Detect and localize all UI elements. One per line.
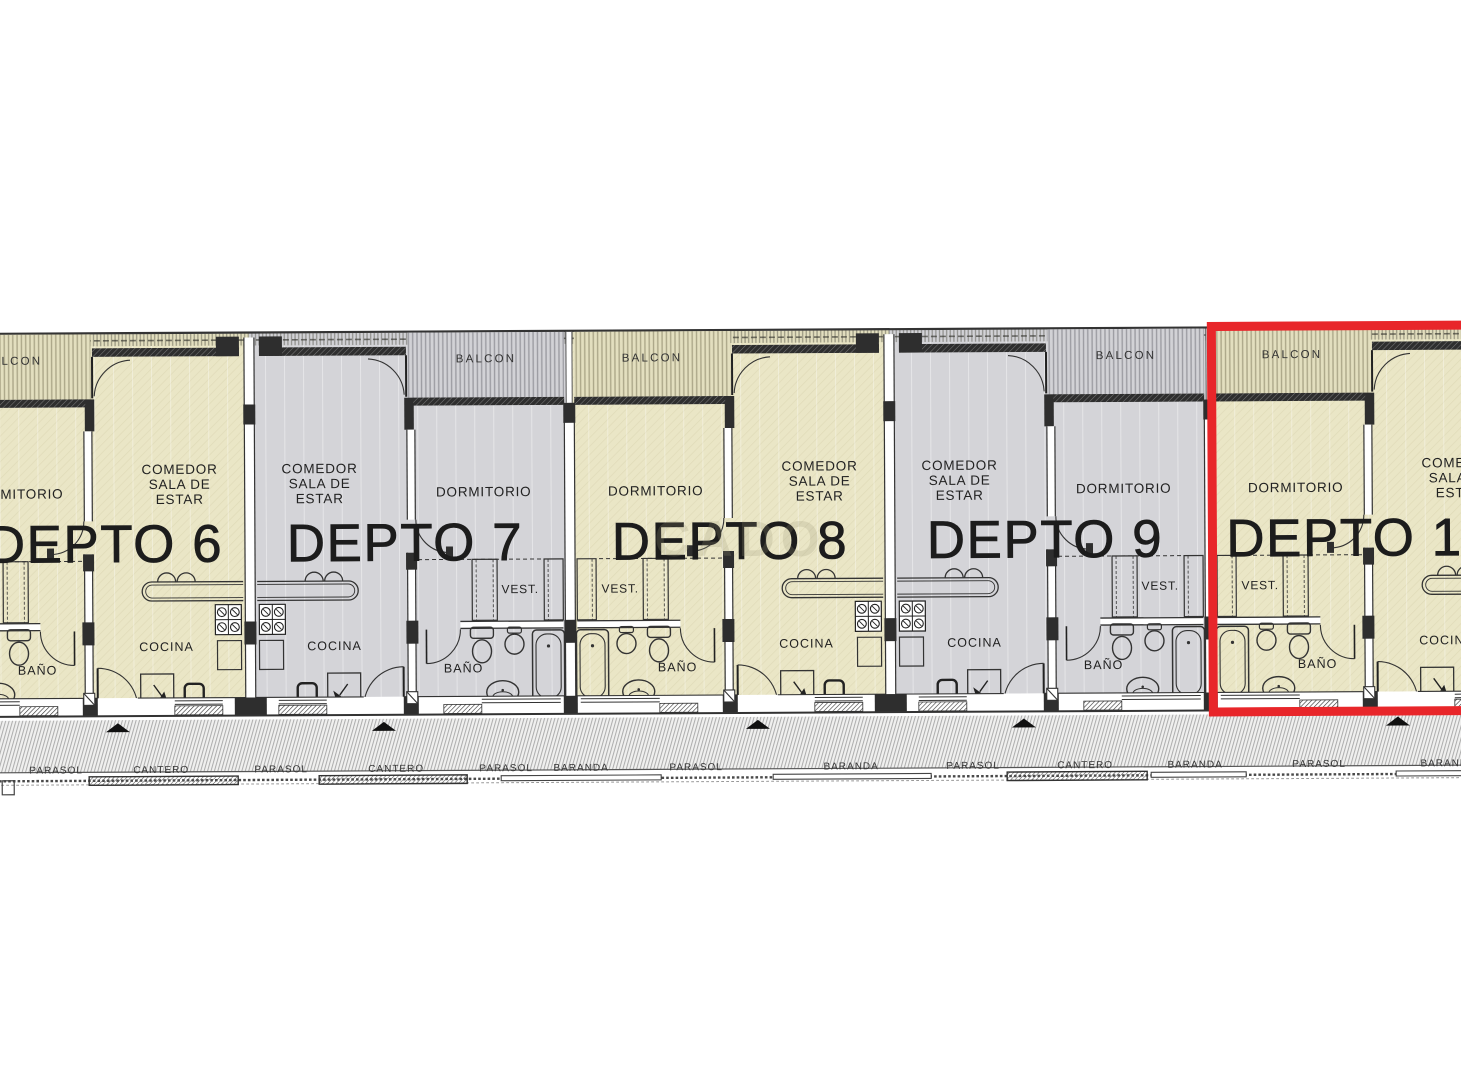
- svg-text:SALA DE: SALA DE: [149, 477, 211, 492]
- svg-text:DORMITORIO: DORMITORIO: [436, 484, 532, 499]
- svg-text:CANTERO: CANTERO: [1057, 760, 1113, 771]
- svg-text:BAÑO: BAÑO: [18, 664, 58, 678]
- svg-text:ESTAR: ESTAR: [936, 488, 984, 503]
- svg-text:COMEDOR: COMEDOR: [281, 461, 357, 476]
- svg-text:DEPTO 10: DEPTO 10: [1226, 508, 1461, 568]
- svg-text:DEPTO 6: DEPTO 6: [0, 515, 223, 575]
- svg-text:PARASOL: PARASOL: [479, 763, 533, 774]
- svg-text:COMEDOR: COMEDOR: [1421, 455, 1461, 470]
- svg-text:BAÑO: BAÑO: [1298, 657, 1338, 671]
- svg-text:SALA DE: SALA DE: [789, 473, 851, 488]
- svg-text:ESTAR: ESTAR: [156, 492, 204, 507]
- svg-text:CANTERO: CANTERO: [368, 764, 424, 775]
- svg-text:COMEDOR: COMEDOR: [921, 458, 997, 473]
- svg-text:BARANDA: BARANDA: [553, 763, 608, 774]
- svg-text:PARASOL: PARASOL: [946, 761, 1000, 772]
- svg-text:SALA DE: SALA DE: [1429, 470, 1461, 485]
- svg-text:COMEDOR: COMEDOR: [141, 462, 217, 477]
- svg-text:BALCON: BALCON: [456, 353, 517, 365]
- svg-text:ESTAR: ESTAR: [1436, 485, 1461, 500]
- svg-text:BALCON: BALCON: [622, 352, 683, 364]
- svg-text:BARANDA: BARANDA: [1420, 758, 1461, 769]
- svg-text:VEST.: VEST.: [501, 582, 538, 596]
- svg-text:ESTAR: ESTAR: [796, 488, 844, 503]
- svg-text:PARASOL: PARASOL: [669, 762, 723, 773]
- svg-text:BARANDA: BARANDA: [1167, 759, 1222, 770]
- svg-text:DORMITORIO: DORMITORIO: [608, 483, 704, 498]
- svg-text:DORMITORIO: DORMITORIO: [1248, 480, 1344, 495]
- svg-text:COCINA: COCINA: [1419, 633, 1461, 647]
- svg-text:COCINA: COCINA: [947, 636, 1002, 650]
- svg-text:DORMITORIO: DORMITORIO: [1076, 481, 1172, 496]
- svg-text:VEST.: VEST.: [1241, 578, 1278, 592]
- svg-text:PARASOL: PARASOL: [254, 764, 308, 775]
- svg-text:BAÑO: BAÑO: [1084, 658, 1124, 672]
- svg-text:DEPTO 9: DEPTO 9: [927, 510, 1164, 570]
- svg-text:BALCON: BALCON: [1096, 350, 1157, 362]
- svg-text:COCINA: COCINA: [139, 640, 194, 654]
- svg-text:ESTAR: ESTAR: [296, 491, 344, 506]
- svg-text:PARASOL: PARASOL: [1292, 759, 1346, 770]
- svg-text:COCINA: COCINA: [779, 636, 834, 650]
- svg-text:BARANDA: BARANDA: [823, 761, 878, 772]
- svg-text:DORMITORIO: DORMITORIO: [0, 486, 63, 501]
- svg-text:VEST.: VEST.: [1141, 579, 1178, 593]
- svg-text:BAÑO: BAÑO: [658, 660, 698, 674]
- svg-text:VEST.: VEST.: [601, 581, 638, 595]
- svg-text:BALCON: BALCON: [0, 356, 42, 368]
- svg-text:COCINA: COCINA: [307, 639, 362, 653]
- svg-text:SALA DE: SALA DE: [289, 476, 351, 491]
- svg-text:CADO: CADO: [654, 511, 825, 567]
- svg-text:DEPTO 7: DEPTO 7: [287, 513, 524, 573]
- svg-text:SALA DE: SALA DE: [929, 473, 991, 488]
- svg-text:BALCON: BALCON: [1262, 349, 1323, 361]
- svg-text:PARASOL: PARASOL: [29, 765, 83, 776]
- svg-text:BAÑO: BAÑO: [444, 661, 484, 675]
- svg-text:COMEDOR: COMEDOR: [781, 458, 857, 473]
- svg-text:CANTERO: CANTERO: [133, 765, 189, 776]
